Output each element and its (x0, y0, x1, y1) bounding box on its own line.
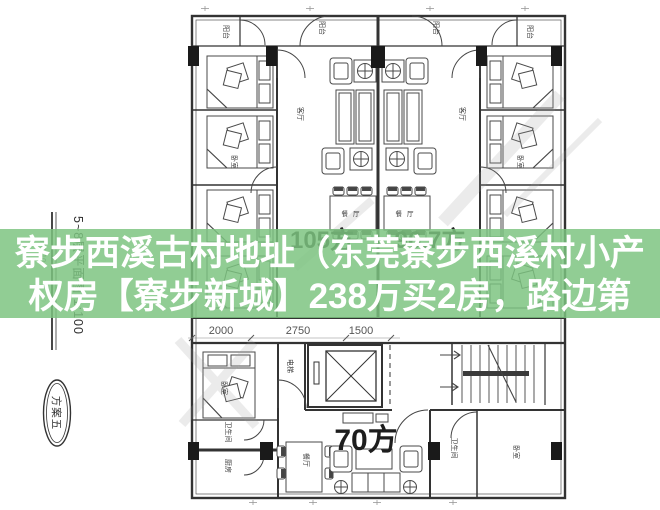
dim-2750: 2750 (286, 325, 310, 337)
dim-2000: 2000 (209, 325, 233, 337)
bedroom-label: 卧室 (220, 381, 229, 395)
balcony-label: 阳台 (318, 21, 327, 35)
dining-label: 餐厅 (396, 209, 419, 218)
dining-label: 餐厅 (302, 453, 311, 467)
living-label: 客厅 (296, 107, 305, 121)
balcony-label: 阳台 (432, 21, 441, 35)
kitchen-label: 厨房 (224, 459, 233, 473)
listing-image: 阳台 阳台 阳台 阳台 卧室 卧室 卧室 卧室 客厅 客厅 电梯 卫生间 卫生间… (0, 0, 660, 510)
bedroom-label: 卧室 (512, 445, 521, 459)
elevator-shaft (308, 345, 382, 407)
elevator-label: 电梯 (286, 359, 295, 373)
balcony-label: 阳台 (526, 25, 535, 39)
dim-1500: 1500 (349, 325, 373, 337)
headline-overlay: 寮步西溪古村地址（东莞寮步西溪村小产 权房【寮步新城】238万买2房，路边第 (0, 229, 660, 318)
bathroom-label: 卫生间 (224, 422, 233, 443)
dining-label: 餐厅 (342, 209, 365, 218)
bathroom-label: 卫生间 (450, 438, 459, 459)
living-label: 客厅 (458, 107, 467, 121)
bedroom-label: 卧室 (230, 155, 239, 169)
stairs (440, 345, 534, 403)
scheme-stamp: 方案五 (50, 396, 63, 431)
bedroom-label: 卧室 (516, 155, 525, 169)
headline-line2: 权房【寮步新城】238万买2房，路边第 (0, 275, 660, 318)
balcony-label: 阳台 (222, 25, 231, 39)
dimension-string: 2000 2750 1500 (188, 325, 400, 341)
headline-line1: 寮步西溪古村地址（东莞寮步西溪村小产 (0, 232, 660, 275)
area-70: 70方 (334, 423, 397, 457)
